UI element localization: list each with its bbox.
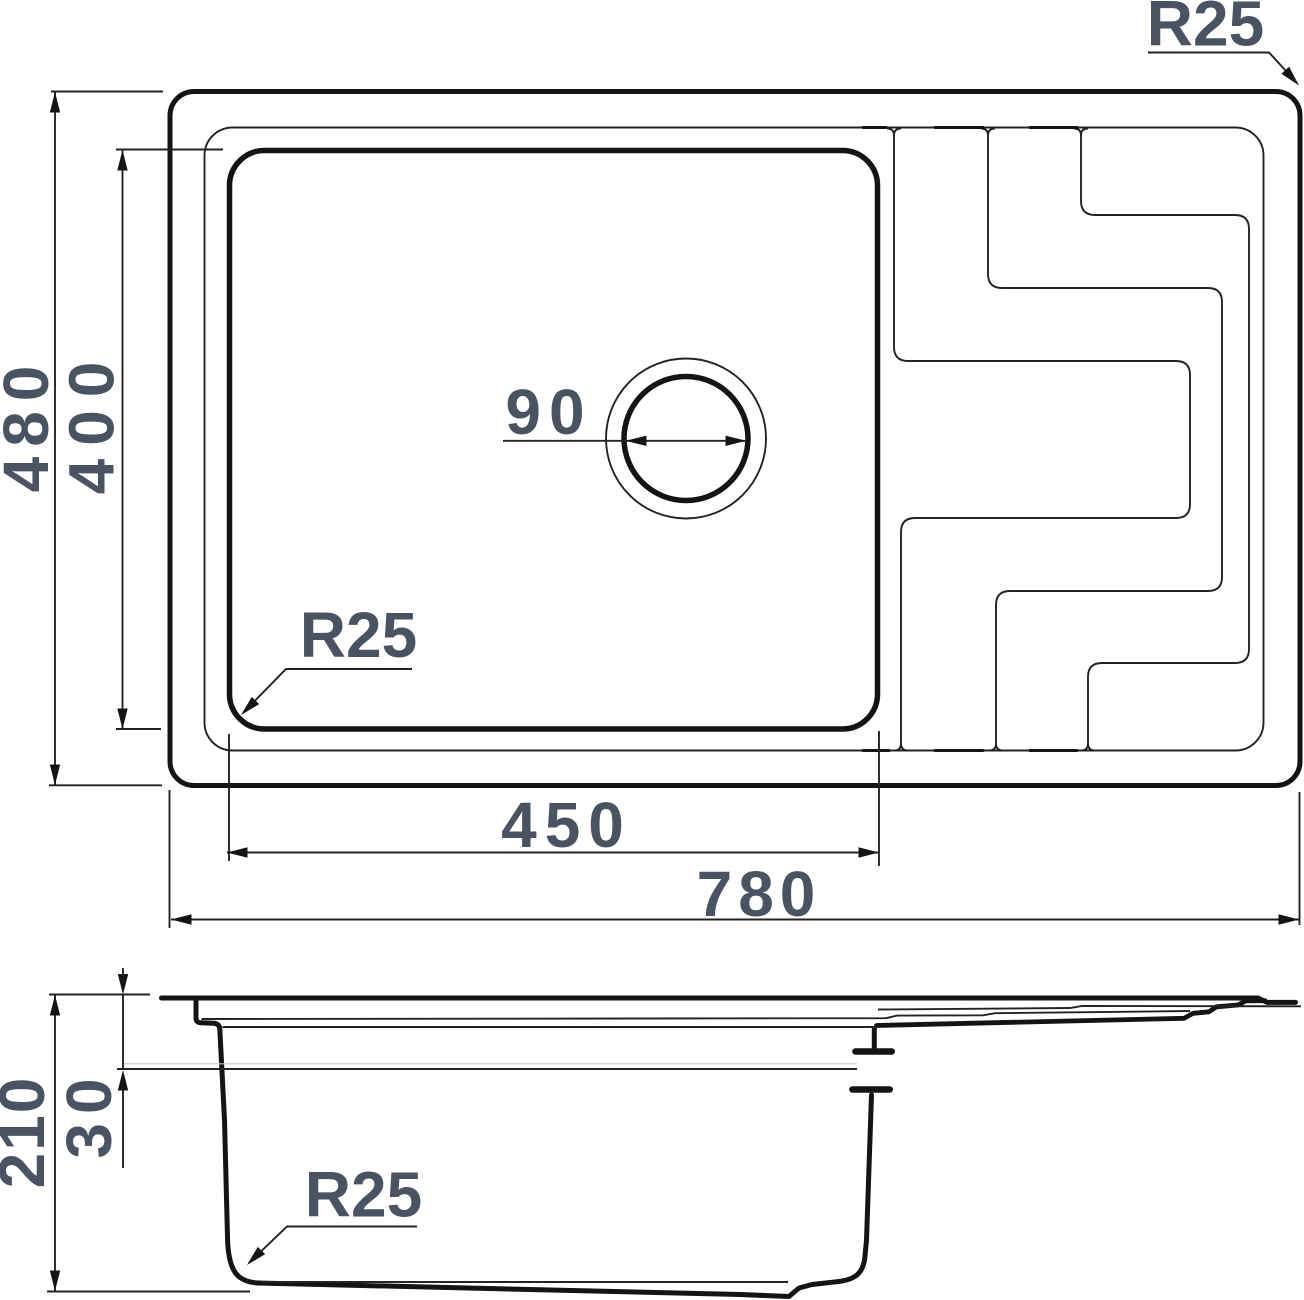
svg-text:400: 400 (56, 349, 128, 495)
svg-text:30: 30 (53, 1069, 125, 1158)
svg-text:R25: R25 (300, 599, 417, 671)
svg-text:90: 90 (505, 376, 592, 448)
svg-text:R25: R25 (305, 1159, 422, 1231)
svg-text:780: 780 (697, 858, 822, 930)
svg-text:480: 480 (0, 356, 62, 493)
svg-text:450: 450 (501, 789, 632, 861)
svg-text:210: 210 (0, 1076, 58, 1189)
svg-text:R25: R25 (1147, 0, 1264, 60)
